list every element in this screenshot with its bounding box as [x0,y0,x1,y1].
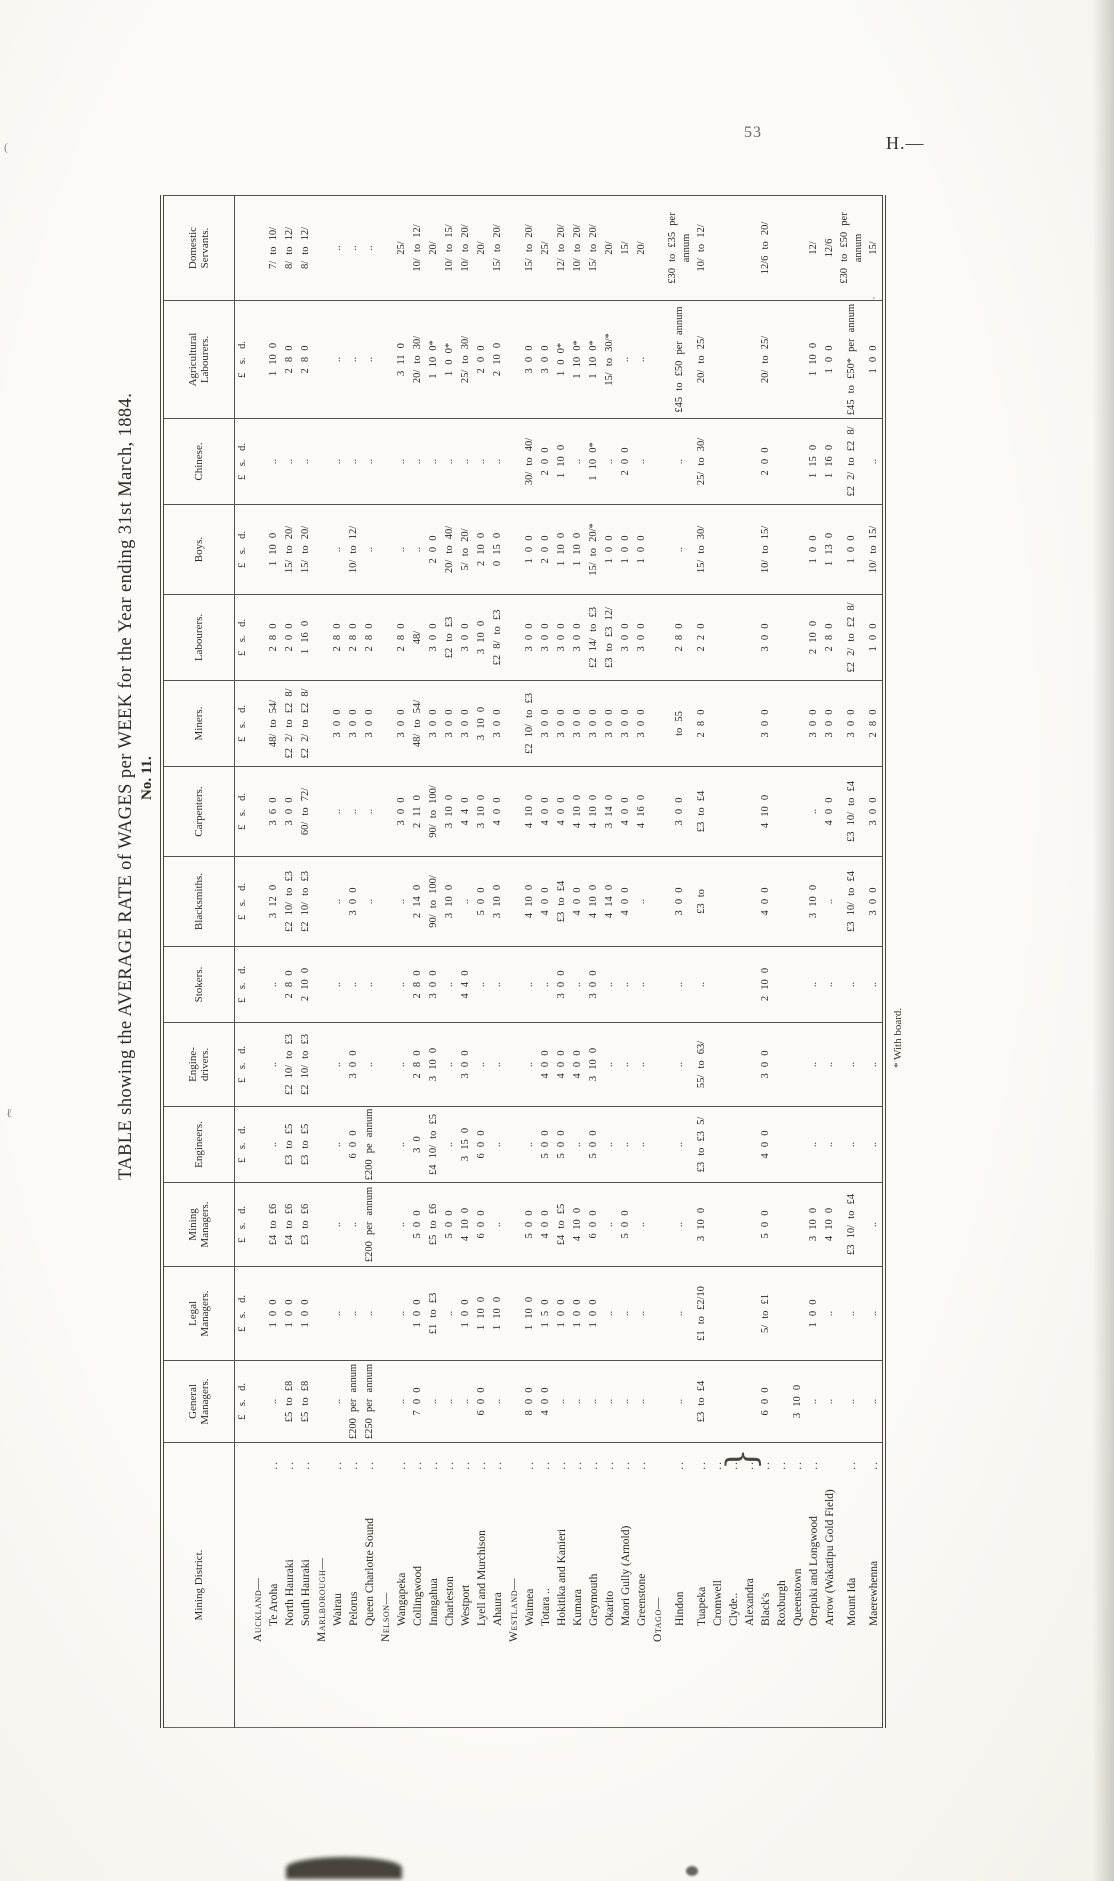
wage-cell: .. [394,857,410,947]
district-name-cell: Otago— [650,1443,666,1728]
wage-cell [790,1107,806,1183]
wage-cell: .. [266,1361,282,1443]
wage-cell [250,419,266,505]
leader-dots: .. [443,1444,457,1470]
wage-cell: 15/ to 20/ [298,505,314,595]
wage-cell [506,505,522,595]
wage-cell: 1 0 0 [806,505,822,595]
wage-cell: 15/ to 30/ [694,505,710,595]
wage-cell: .. [538,947,554,1023]
wage-cell: 3 6 0 [266,767,282,857]
wage-cell: 2 0 0 [474,301,490,419]
wage-cell: 4 0 0 [618,767,634,857]
wage-cell: 2 8 0 [298,301,314,419]
wage-cell: 15/ to 30/* [602,301,618,419]
wage-cell [250,1183,266,1267]
wage-cell [790,857,806,947]
district-name: Hindon [673,1592,687,1727]
wage-cell: 3 0 0 [602,681,618,767]
units-cell: £ s. d. [235,767,251,857]
wage-cell: 1 0 0 [618,505,634,595]
wage-cell [506,1023,522,1107]
wage-cell [314,947,330,1023]
district-name: Queen Charlotte Sound [363,1518,377,1726]
wage-cell: .. [602,419,618,505]
wage-cell: 2 8 0 [666,595,694,681]
wage-cell: .. [362,1267,378,1361]
wage-cell [250,681,266,767]
wage-cell: 1 0 0 [822,301,838,419]
wage-cell [726,947,742,1023]
wage-cell: 3 0 0 [618,681,634,767]
wage-cell [650,767,666,857]
wage-cell: 1 10 0 [570,505,586,595]
wage-cell: 15/ [618,196,634,301]
wage-cell: 1 0 0 [554,1267,570,1361]
wage-cell [250,301,266,419]
wage-cell: £3 to £5 [298,1107,314,1183]
wage-cell: 90/ to 100/ [426,767,442,857]
wage-cell [790,767,806,857]
wage-cell: 4 0 0 [618,857,634,947]
district-name-cell: Greenstone.. [634,1443,650,1728]
wage-cell: £4 to £6 [266,1183,282,1267]
wage-cell [742,419,758,505]
wage-cell: 25/ [394,196,410,301]
wage-cell [250,1267,266,1361]
wage-cell: .. [330,857,346,947]
wage-cell [710,301,726,419]
leader-dots: .. [347,1444,361,1470]
wage-cell: 20/ to 40/ [442,505,458,595]
column-header: Mining District. [162,1443,235,1728]
wage-cell: 1 0 0 [602,505,618,595]
wage-cell: 1 13 0 [822,505,838,595]
wage-cell [742,1267,758,1361]
wage-cell: .. [346,301,362,419]
wage-cell: 5 0 0 [554,1107,570,1183]
table-row: Mount Ida......£3 10/ to £4......£3 10/ … [838,196,866,1728]
wage-cell: .. [330,1107,346,1183]
wage-cell: 1 0 0 [570,1267,586,1361]
wage-cell: £1 to £2/10 [694,1267,710,1361]
wage-cell: 3 10 0 [426,1023,442,1107]
wage-cell: .. [806,947,822,1023]
margin-mark-icon: ( [4,140,8,155]
wage-cell: .. [490,419,506,505]
table-row: Tuapeka..£3 to £4£1 to £2/103 10 0£3 to … [694,196,710,1728]
wage-cell: 5 0 0 [758,1183,774,1267]
wage-cell: 3 0 0 [586,947,602,1023]
table-row: Roxburgh.. [774,196,790,1728]
wage-cell: £3 10/ to £4 [838,857,866,947]
wage-cell: .. [602,947,618,1023]
wage-cell: 3 10 0 [586,1023,602,1107]
wage-cell [314,681,330,767]
wage-cell: .. [866,1267,884,1361]
table-title: TABLE showing the AVERAGE RATE of WAGES … [116,196,137,1180]
wage-cell: 2 8 0 [694,681,710,767]
column-header: Chinese. [162,419,235,505]
wage-cell: 2 10 0 [758,947,774,1023]
wage-cell: 4 4 0 [458,947,474,1023]
wage-cell: £2 10/ to £3 [282,1023,298,1107]
wage-cell: .. [346,196,362,301]
wage-cell [250,505,266,595]
wage-cell: 10/ to 15/ [866,505,884,595]
wage-cell: 3 10 0 [790,1361,806,1443]
wage-cell: .. [666,1183,694,1267]
wage-cell: .. [570,419,586,505]
wage-cell: 4 4 0 [458,767,474,857]
scanned-document-page: 53 H.— TABLE showing the AVERAGE RATE of… [0,0,1114,1881]
table-row: Maerewhenna..............3 0 03 0 02 8 0… [866,196,884,1728]
district-name: Ahaura [491,1592,505,1726]
wage-cell: 4 10 0 [522,767,538,857]
wage-cell: 3 0 0 [522,595,538,681]
wage-cell: £2 to £3 [442,595,458,681]
wage-cell [650,419,666,505]
wage-cell: .. [362,947,378,1023]
wage-cell [742,767,758,857]
wage-cell: 3 0 0 [554,595,570,681]
wage-cell: 1 10 0* [586,419,602,505]
wage-cell: 2 14 0 [410,857,426,947]
wage-cell: 2 0 0 [618,419,634,505]
leader-dots: .. [267,1444,281,1470]
wage-cell: 4 10 0 [570,767,586,857]
wage-cell: 4 10 0 [570,1183,586,1267]
wage-cell: 1 0 0 [282,1267,298,1361]
leader-dots: .. [475,1444,489,1470]
wage-cell [378,1023,394,1107]
table-row: Hokitika and Kanieri....1 0 0£4 to £55 0… [554,196,570,1728]
wage-cell: .. [618,1023,634,1107]
district-name: Mount Ida [845,1578,859,1726]
wage-cell: 2 10 0 [474,505,490,595]
wage-cell: 4 0 0 [758,857,774,947]
wage-cell: 3 10 0 [442,857,458,947]
table-row: Lyell and Murchison..6 0 01 10 06 0 06 0… [474,196,490,1728]
wage-cell: 4 0 0 [538,857,554,947]
column-header: Agricultural Labourers. [162,301,235,419]
wage-cell: 48/ [410,595,426,681]
wage-cell: 2 10 0 [490,301,506,419]
wage-cell [710,767,726,857]
wage-cell: £3 to £4 [694,767,710,857]
wage-cell: 5 0 0 [586,1107,602,1183]
wage-cell [710,681,726,767]
wage-cell: 4 0 0 [554,767,570,857]
wage-cell: 3 0 0 [758,681,774,767]
wage-cell: 3 0 0 [758,595,774,681]
wage-cell: 15/ to 20/ [490,196,506,301]
wage-cell: .. [570,1361,586,1443]
table-row: Alexandra.. [742,196,758,1728]
wage-cell [742,1023,758,1107]
district-name-cell: Pelorus.. [346,1443,362,1728]
wage-cell: .. [330,947,346,1023]
wage-cell: 6 0 0 [758,1361,774,1443]
wage-cell: 15/ [866,196,884,301]
wage-cell: .. [330,1267,346,1361]
wage-cell: £3 to £5 [282,1107,298,1183]
wage-cell: £3 to [694,857,710,947]
wage-cell: £3 to £3 5/ [694,1107,710,1183]
wage-cell: .. [330,419,346,505]
leader-dots: .. [571,1444,585,1470]
wage-cell: .. [866,1023,884,1107]
wage-cell: .. [838,1107,866,1183]
wage-cell: .. [806,1107,822,1183]
wage-cell: 3 0 0 [586,681,602,767]
wage-cell: 4 0 0 [538,767,554,857]
wage-cell: 4 0 0 [570,1023,586,1107]
wage-cell: 3 0 0 [522,301,538,419]
wage-cell: 3 10 0 [806,1183,822,1267]
wage-cell [506,1361,522,1443]
wage-cell [710,1361,726,1443]
wage-cell: .. [822,1107,838,1183]
wage-cell: 3 10 0 [490,857,506,947]
leader-dots: .. [395,1444,409,1470]
wage-cell: 1 10 0 [554,505,570,595]
wage-cell [250,1361,266,1443]
district-name-cell: Ahaura.. [490,1443,506,1728]
wage-cell [378,301,394,419]
wage-cell [506,681,522,767]
wage-cell [742,1183,758,1267]
wage-cell: .. [330,1023,346,1107]
wage-cell: 1 10 0* [586,301,602,419]
wage-cell: .. [666,1023,694,1107]
wage-cell: 3 0 0 [806,681,822,767]
wage-cell: 12/ [806,196,822,301]
wage-cell: 2 8 0 [866,681,884,767]
table-row: Kumara....1 0 04 10 0..4 0 0..4 0 04 10 … [570,196,586,1728]
wage-cell [250,595,266,681]
wage-cell: .. [266,1023,282,1107]
wage-cell: .. [458,1361,474,1443]
wage-cell: .. [822,1267,838,1361]
units-cell: £ s. d. [235,595,251,681]
wage-cell: 2 10 0 [806,595,822,681]
page-number: 53 [744,124,762,142]
wage-cell [726,681,742,767]
district-name-cell: Wairau.. [330,1443,346,1728]
wage-cell: 1 0 0 [586,1267,602,1361]
table-body: £ s. d.£ s. d.£ s. d.£ s. d.£ s. d.£ s. … [235,196,885,1728]
wage-cell: .. [602,1107,618,1183]
wage-cell [650,301,666,419]
wage-cell [710,947,726,1023]
district-name: Okarito [603,1591,617,1726]
district-name-cell: Hindon.. [666,1443,694,1728]
wage-cell: .. [362,505,378,595]
wage-cell: .. [346,419,362,505]
wage-cell: £1 to £3 [426,1267,442,1361]
wage-cell [378,1107,394,1183]
wage-cell: 3 0 0 [490,681,506,767]
wage-cell: 3 10 0 [442,767,458,857]
wage-cell [790,1267,806,1361]
district-name: Cromwell [711,1580,725,1726]
wage-cell: .. [586,1361,602,1443]
wage-cell: 10/ to 20/ [458,196,474,301]
wage-cell: 48/ to 54/ [410,681,426,767]
district-name-cell: Greymouth.. [586,1443,602,1728]
wage-cell: 1 5 0 [538,1267,554,1361]
district-name: Alexandra [743,1578,757,1726]
wage-cell: £200 per annum [346,1361,362,1443]
wage-cell: £2 2/ to £2 8/ [838,419,866,505]
wage-cell [790,196,806,301]
wage-cell: 1 0 0 [522,505,538,595]
wage-cell [506,1107,522,1183]
wage-cell: 8 0 0 [522,1361,538,1443]
wage-cell: 1 0 0 [806,1267,822,1361]
wage-cell: 4 0 0 [758,1107,774,1183]
wage-cell: .. [838,1023,866,1107]
leader-dots: .. [673,1444,687,1470]
table-row: Arrow (Wakatipu Gold Field)....4 10 0...… [822,196,838,1728]
wage-cell [774,419,790,505]
wage-cell: 5 0 0 [618,1183,634,1267]
wage-cell: .. [618,1267,634,1361]
column-header: Carpenters. [162,767,235,857]
wage-cell: .. [822,857,838,947]
leader-dots: .. [331,1444,345,1470]
wage-cell: 2 8 0 [282,947,298,1023]
district-name-cell: Black's.. [758,1443,774,1728]
wage-cell: 6 0 0 [346,1107,362,1183]
wage-cell: 1 0 0* [554,301,570,419]
units-cell: £ s. d. [235,505,251,595]
column-header: Engine- drivers. [162,1023,235,1107]
wage-cell [790,505,806,595]
wage-cell: .. [634,857,650,947]
table-row: Collingwood..7 0 01 0 05 0 03 02 8 02 8 … [410,196,426,1728]
wage-cell [774,1361,790,1443]
leader-dots: .. [807,1444,821,1470]
wage-cell [790,681,806,767]
wage-cell: 1 10 0 [806,301,822,419]
wage-cell: 12/ to 20/ [554,196,570,301]
wage-cell: .. [362,196,378,301]
wage-cell [650,1023,666,1107]
wage-cell: 4 10 0 [586,857,602,947]
units-cell: £ s. d. [235,1361,251,1443]
table-row: Ahaura....1 10 0........3 10 04 0 03 0 0… [490,196,506,1728]
wage-cell: £2 8/ to £3 [490,595,506,681]
wage-cell: 2 8 0 [394,595,410,681]
wage-cell [650,1361,666,1443]
wage-cell: 5 0 0 [474,857,490,947]
table-row: Wangapeka................3 0 03 0 02 8 0… [394,196,410,1728]
table-row: Maori Gully (Arnold)......5 0 0......4 0… [618,196,634,1728]
wage-cell: 3 0 0 [866,767,884,857]
district-name-cell: Orepuki and Longwood.. [806,1443,822,1728]
wage-cell: .. [346,767,362,857]
wage-cell: £3 to £6 [298,1183,314,1267]
wage-cell [726,595,742,681]
wage-cell: 4 10 0 [458,1183,474,1267]
wage-cell: £45 to £50* per annum [838,301,866,419]
district-name-cell: South Hauraki.. [298,1443,314,1728]
wage-cell: .. [490,947,506,1023]
district-name-cell: North Hauraki.. [282,1443,298,1728]
wage-cell: .. [838,1267,866,1361]
stray-mark-icon: ’ [872,296,875,307]
wage-cell: .. [634,419,650,505]
wage-cell [378,947,394,1023]
wage-cell: 2 8 0 [346,595,362,681]
wage-cell: £3 to £3 12/ [602,595,618,681]
wage-cell: 3 0 0 [538,595,554,681]
wage-cell: .. [330,505,346,595]
units-cell: £ s. d. [235,681,251,767]
wage-cell: 3 0 0 [458,595,474,681]
wage-cell: 3 0 0 [458,1023,474,1107]
wage-cell: .. [634,1023,650,1107]
wage-cell: 3 0 0 [866,857,884,947]
wage-cell: 2 10 0 [298,947,314,1023]
wage-cell: 10/ to 20/ [570,196,586,301]
leader-dots: .. [283,1444,297,1470]
wage-cell: 3 0 [410,1107,426,1183]
wage-cell: .. [442,419,458,505]
wage-cell: .. [866,947,884,1023]
wage-cell: .. [458,419,474,505]
wage-cell: 3 0 0 [362,681,378,767]
scan-smudge-icon [686,1866,698,1876]
wage-cell: 1 0 0 [410,1267,426,1361]
district-name-cell: Collingwood.. [410,1443,426,1728]
wage-cell [774,595,790,681]
wage-cell: .. [634,947,650,1023]
wage-cell: .. [394,947,410,1023]
wage-cell [726,1023,742,1107]
district-name: Black's [759,1593,773,1726]
column-header: Miners. [162,681,235,767]
wage-cell: 15/ to 20/ [282,505,298,595]
wage-cell: 3 11 0 [394,301,410,419]
wage-cell: 6 0 0 [474,1183,490,1267]
wage-cell [790,595,806,681]
wage-cell: 4 0 0 [570,857,586,947]
wage-cell [506,767,522,857]
wage-cell: .. [330,196,346,301]
wage-cell [314,1183,330,1267]
wage-cell [774,857,790,947]
district-name: Pelorus [347,1592,361,1727]
table-row: Queenstown..3 10 0 [790,196,806,1728]
wage-cell [726,1361,742,1443]
wage-cell: .. [442,1107,458,1183]
wage-cell: £3 10/ to £4 [838,767,866,857]
wage-cell: .. [298,419,314,505]
district-name-cell: Maerewhenna.. [866,1443,884,1728]
wage-cell [726,196,742,301]
wage-cell: 30/ to 40/ [522,419,538,505]
table-row: Clyde.... [726,196,742,1728]
wage-cell: 3 0 0 [426,681,442,767]
wage-cell: 6 0 0 [474,1107,490,1183]
rotated-table-block: TABLE showing the AVERAGE RATE of WAGES … [116,196,904,1728]
leader-dots: .. [845,1444,859,1470]
wage-cell: .. [634,301,650,419]
wage-cell: 2 2 0 [694,595,710,681]
